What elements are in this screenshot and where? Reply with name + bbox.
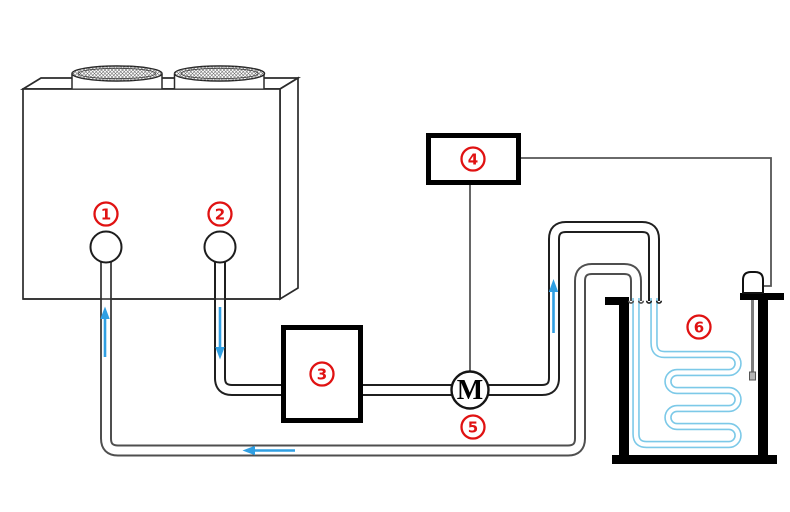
tank-right-flange [740,293,784,300]
sensor-body [743,272,763,293]
label-marker-1: 1 [95,203,118,226]
port-1-circle [91,232,122,263]
label-marker-2: 2 [209,203,232,226]
marker-3-text: 3 [317,365,327,383]
tank-right-wall [758,300,768,455]
motor-label: M [457,375,483,406]
unit-front-face [23,89,280,299]
tank-bottom [612,455,777,464]
outdoor-unit [23,66,298,299]
pump-motor: M [452,372,489,409]
sensor-probe-tip [750,372,756,380]
marker-4-text: 4 [468,150,478,168]
marker-5-text: 5 [468,418,478,436]
marker-6-text: 6 [694,318,704,336]
fan-icon [72,66,162,89]
cooling-coil [636,298,738,445]
label-marker-4: 4 [462,148,485,171]
label-marker-5: 5 [462,416,485,439]
tank-left-wall [605,297,629,455]
marker-2-text: 2 [215,205,225,223]
diagram-canvas: M 1 2 3 4 5 6 [0,0,790,512]
fan-icon [175,66,265,89]
label-marker-6: 6 [688,316,711,339]
pipe-end-caps [629,301,662,303]
port-2-circle [205,232,236,263]
unit-side-face [280,78,298,299]
diagram: M 1 2 3 4 5 6 [0,0,790,512]
marker-1-text: 1 [101,205,111,223]
label-marker-3: 3 [311,363,334,386]
pipe-supply-right [363,227,654,390]
